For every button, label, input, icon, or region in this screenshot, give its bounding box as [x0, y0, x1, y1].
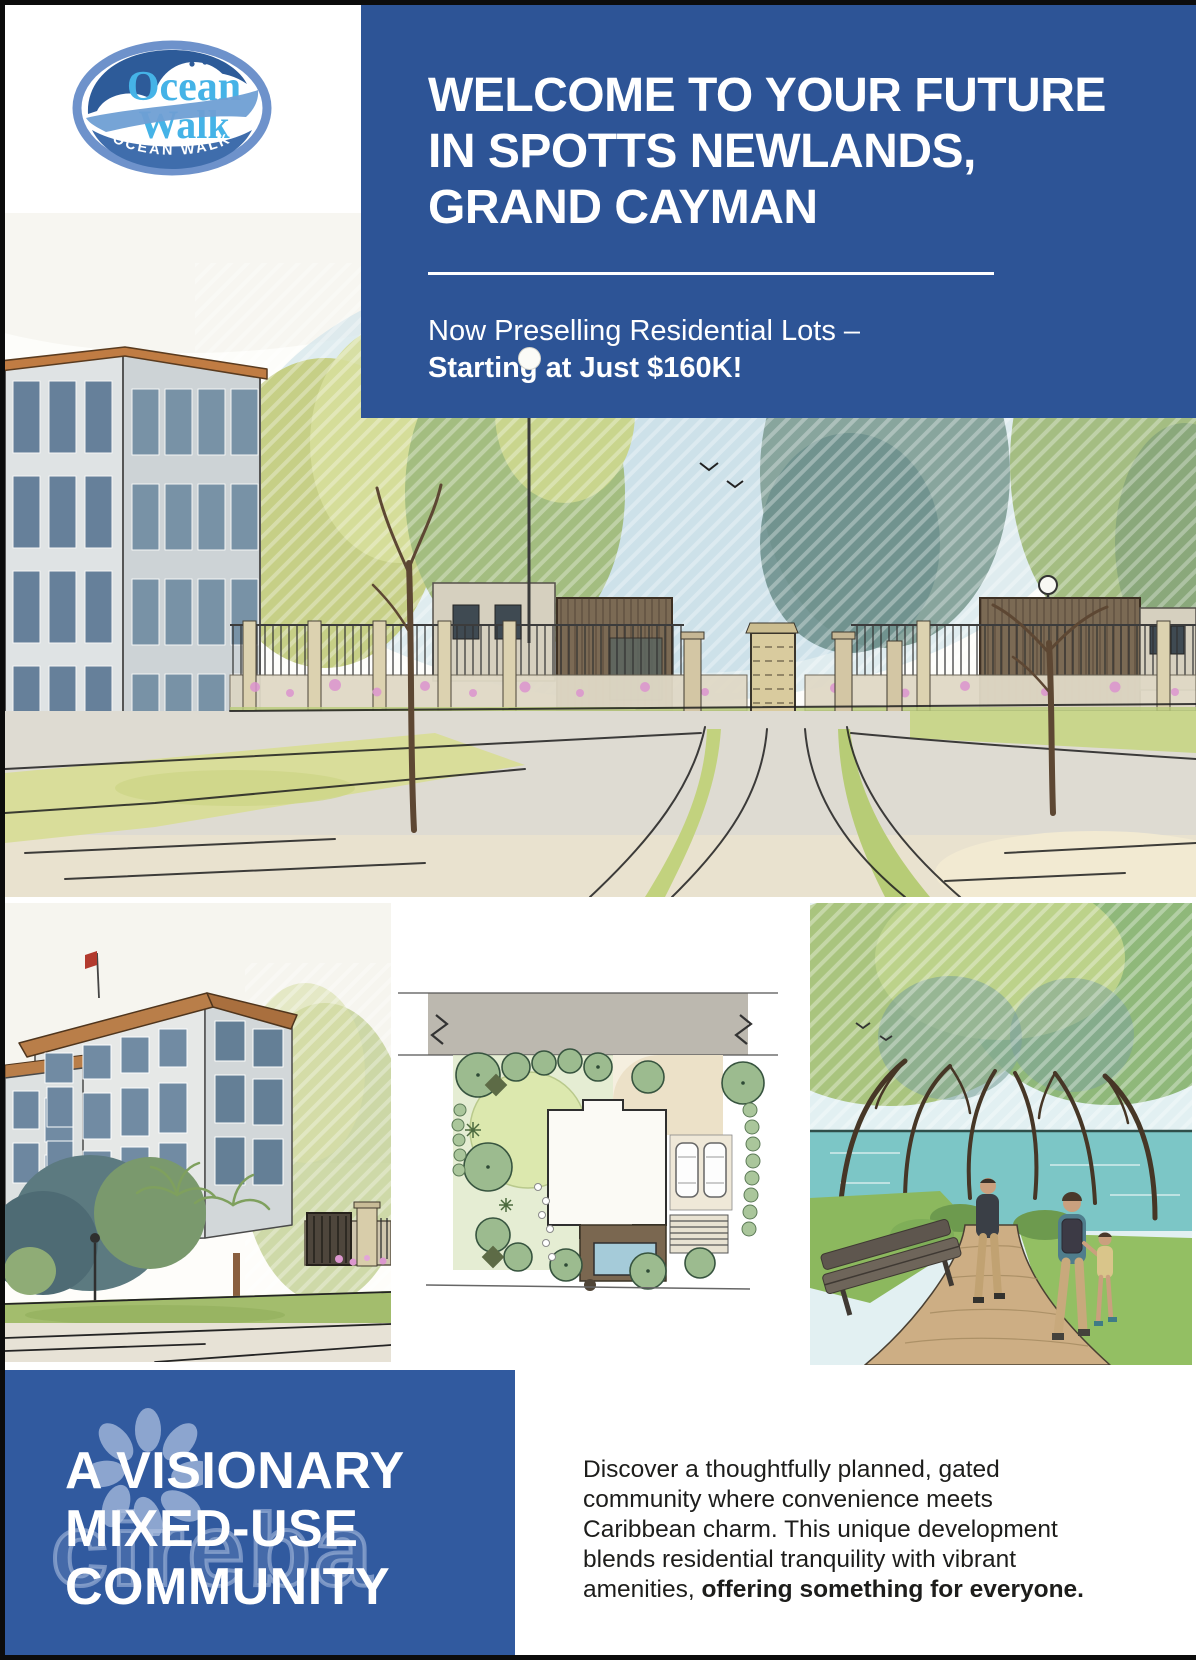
flyer-page: Ocean Walk OCEAN WALK WELCOME TO YOUR FU… — [5, 5, 1196, 1655]
headline-line-1: WELCOME TO YOUR FUTURE — [428, 68, 1156, 124]
driveway-and-lawns — [5, 704, 1196, 897]
gallery-walkway-illustration — [810, 903, 1192, 1365]
community-heading-line-3: COMMUNITY — [65, 1558, 405, 1616]
headline: WELCOME TO YOUR FUTURE IN SPOTTS NEWLAND… — [428, 68, 1156, 236]
description-line: Discover a thoughtfully planned, gated — [583, 1455, 1143, 1485]
community-heading-line-1: A VISIONARY — [65, 1442, 405, 1500]
description-line: amenities, offering something for everyo… — [583, 1575, 1143, 1605]
headline-divider — [428, 272, 994, 275]
gallery-site-plan-illustration — [398, 905, 778, 1291]
headline-line-2: IN SPOTTS NEWLANDS, — [428, 124, 1156, 180]
gatehouse-lamp-icon — [1039, 576, 1057, 594]
description-line: community where convenience meets — [583, 1485, 1143, 1515]
ocean-walk-logo: Ocean Walk OCEAN WALK — [72, 40, 272, 176]
description-line: Caribbean charm. This unique development — [583, 1515, 1143, 1545]
street-lamp-globe-icon — [518, 347, 541, 370]
community-description: Discover a thoughtfully planned, gated c… — [583, 1455, 1143, 1605]
gallery-building-street — [5, 1291, 391, 1362]
presale-subtitle-regular: Now Preselling Residential Lots – — [428, 313, 1156, 350]
community-heading-line-2: MIXED-USE — [65, 1500, 405, 1558]
description-line: blends residential tranquility with vibr… — [583, 1545, 1143, 1575]
site-plan-driveway — [670, 1135, 732, 1253]
community-banner: cireba A VISIONARY MIXED-USE COMMUNITY — [5, 1370, 515, 1655]
community-heading: A VISIONARY MIXED-USE COMMUNITY — [65, 1442, 405, 1616]
site-plan-road — [398, 993, 778, 1055]
gallery-building-illustration — [5, 903, 391, 1362]
hero-banner: WELCOME TO YOUR FUTURE IN SPOTTS NEWLAND… — [361, 5, 1196, 418]
headline-line-3: GRAND CAYMAN — [428, 180, 1156, 236]
